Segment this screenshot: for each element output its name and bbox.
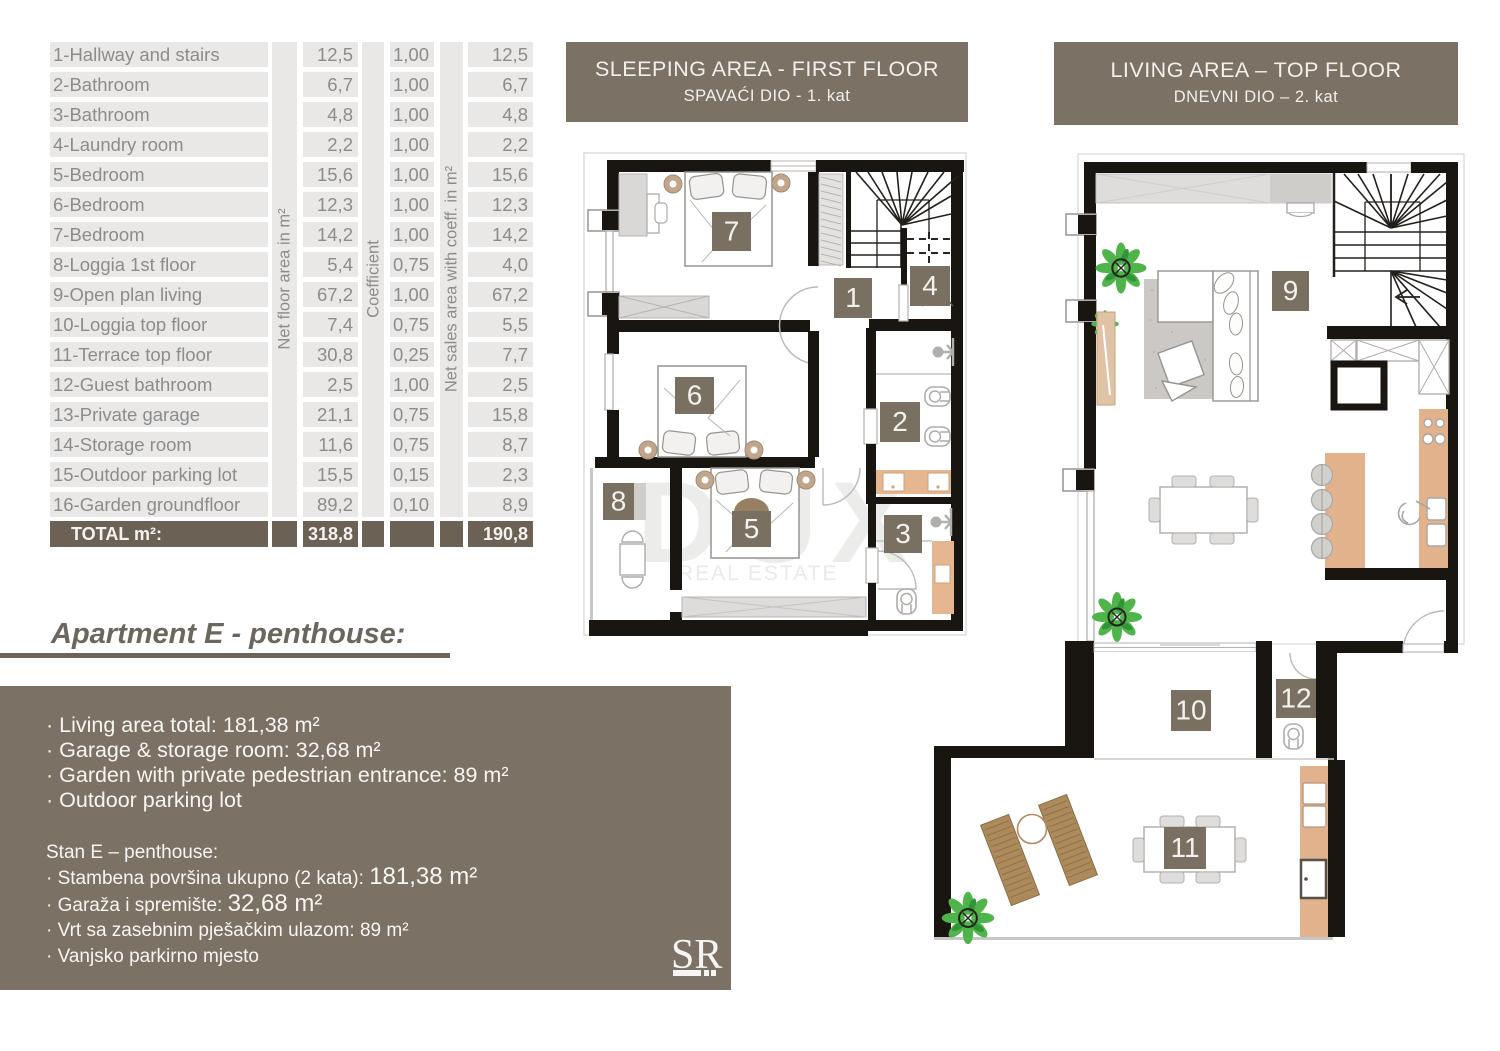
svg-text:10: 10 — [1175, 695, 1206, 726]
svg-text:6: 6 — [687, 380, 703, 411]
svg-text:11: 11 — [1170, 832, 1199, 863]
svg-text:12: 12 — [1280, 683, 1311, 714]
svg-text:1: 1 — [845, 282, 861, 313]
svg-text:3: 3 — [895, 518, 911, 549]
svg-text:REAL ESTATE: REAL ESTATE — [678, 562, 838, 585]
svg-text:5: 5 — [744, 513, 760, 544]
svg-text:8: 8 — [611, 486, 627, 517]
svg-text:2: 2 — [892, 406, 908, 437]
svg-text:7: 7 — [724, 216, 740, 247]
svg-text:4: 4 — [922, 270, 938, 301]
svg-text:9: 9 — [1283, 275, 1299, 306]
